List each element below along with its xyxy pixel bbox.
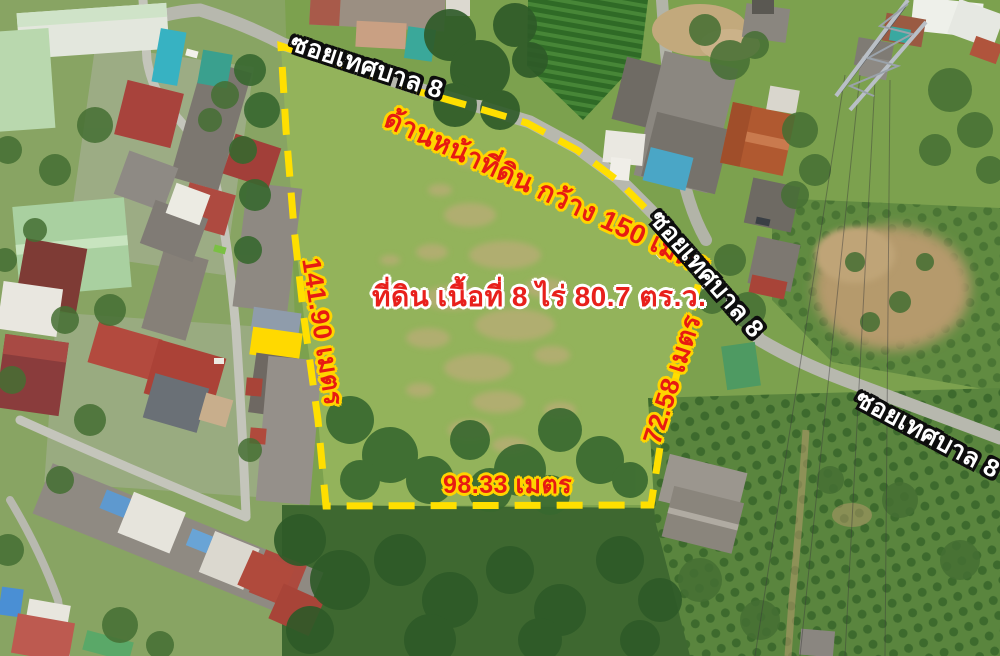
aerial-photo: ซอยเทศบาล 8 ด้านหน้าที่ดิน กว้าง 150 เมต… xyxy=(0,0,1000,656)
aerial-scene xyxy=(0,0,1000,656)
